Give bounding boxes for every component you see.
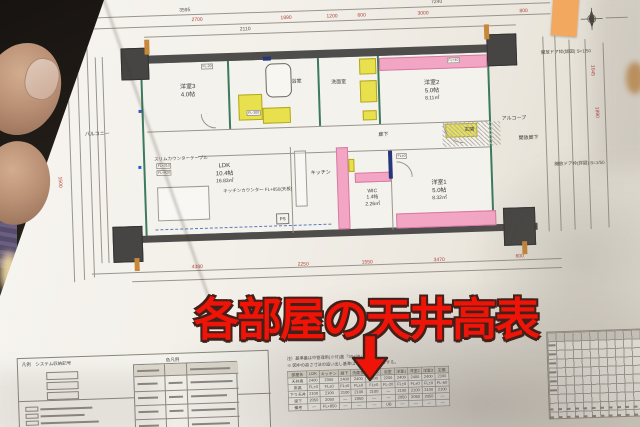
dim-top-red-5: 3000 <box>417 10 428 16</box>
dim-top-black-3: 2110 <box>240 26 251 32</box>
compass-north-icon <box>579 6 604 31</box>
drawing-content: 3595 7240 2110 2700 1890 1200 600 3000 8… <box>0 0 640 427</box>
dim-bottom-red-3: 1550 <box>362 259 373 265</box>
dim-bottom-red-4: 3470 <box>434 257 445 263</box>
dim-left-red-2: 1500 <box>57 177 63 188</box>
floor-level-grid <box>546 328 640 419</box>
concrete-column-br <box>503 207 536 246</box>
sofa-icon <box>157 186 210 222</box>
sticky-note <box>551 0 580 37</box>
legend-title: 凡例 システム収納記号 <box>22 359 72 367</box>
kitchen-counter-icon <box>294 150 308 206</box>
detail-note-right-2: 開放ドア枠(詳図) S=1/50 <box>554 159 604 167</box>
dim-top-red-2: 1890 <box>280 15 291 21</box>
dim-right-red-2: 1890 <box>594 107 600 118</box>
room-entrance: 玄関 <box>455 127 483 134</box>
room-bedroom2: 洋室2 5.0帖 8.11㎡ <box>404 79 461 103</box>
pink-highlight-mid <box>355 172 391 183</box>
room-corridor: 廊下 <box>369 131 397 138</box>
yellow-small <box>348 159 354 172</box>
dim-bottom-red-2: 2250 <box>298 261 309 267</box>
legend-symbol-rows-left <box>25 402 99 427</box>
room-bedroom1: 洋室1 5.0帖 8.32㎡ <box>411 179 468 203</box>
room-bedroom3: 洋室3 4.0帖 <box>166 84 210 100</box>
dim-top-red-4: 600 <box>357 12 366 18</box>
yellow-toilet-box <box>238 94 263 121</box>
room-wic: WIC 1.4帖 2.26㎡ <box>353 188 392 208</box>
dim-top-red-1: 2700 <box>191 17 202 23</box>
room-bath: 浴室 <box>284 78 310 85</box>
yellow-cabinet-2 <box>360 80 378 103</box>
dim-top-black-1: 3595 <box>179 7 190 13</box>
red-arrow-icon <box>350 334 390 382</box>
ps-shaft: PS <box>276 213 289 224</box>
room-open-corridor: 開放廊下 <box>508 134 550 142</box>
dim-top-black-2: 7240 <box>431 0 442 5</box>
room-ldk: LDK 10.4帖 16.83㎡ <box>196 162 253 186</box>
dim-right-red-1: 1045 <box>589 65 595 76</box>
photo-stage: 3595 7240 2110 2700 1890 1200 600 3000 8… <box>0 0 640 427</box>
dim-top-red-3: 1200 <box>326 13 337 19</box>
floorplan-sheet: 3595 7240 2110 2700 1890 1200 600 3000 8… <box>0 0 640 427</box>
balcony-label: バルコニー <box>77 131 117 139</box>
dim-top-red-6: 800 <box>519 8 528 14</box>
room-alcove: アルコープ <box>493 115 535 123</box>
fixture-mini-table <box>133 361 239 427</box>
concrete-column-tr <box>486 33 517 66</box>
entrance-hatch <box>442 121 501 147</box>
yellow-cabinet-1 <box>359 58 377 75</box>
yellow-cabinet-3 <box>363 110 377 120</box>
navy-highlight-top <box>263 57 271 61</box>
finger-edge-blur <box>626 62 640 94</box>
yellow-washstand <box>262 107 291 124</box>
detail-note-right-1: 開放ドア枠(詳図) S=1/50 <box>541 47 591 55</box>
